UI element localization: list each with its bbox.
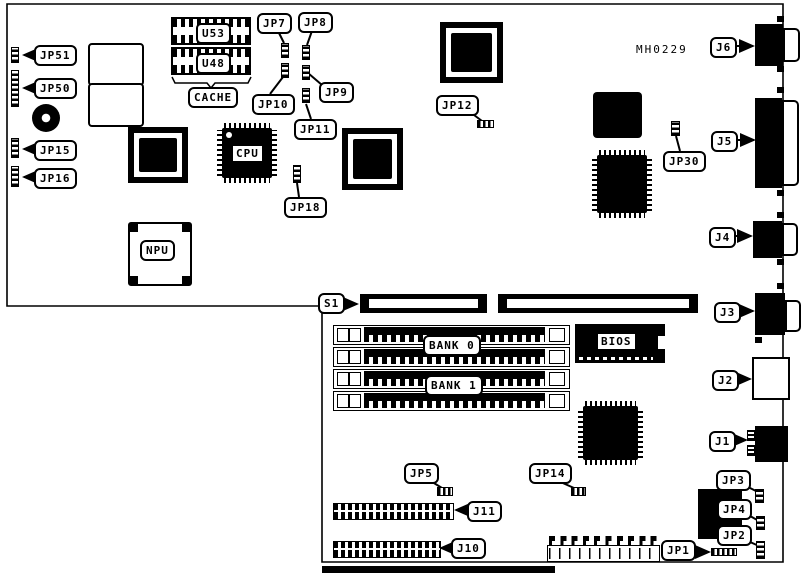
callout-s1: S1 bbox=[318, 293, 345, 314]
label-bios: BIOS bbox=[598, 334, 635, 349]
simm-clip bbox=[549, 328, 565, 342]
pin-strip bbox=[592, 157, 597, 211]
chip-qfp-upper bbox=[597, 155, 647, 213]
header-j11 bbox=[333, 503, 454, 520]
simm-clip bbox=[349, 350, 361, 364]
simm-clip bbox=[337, 350, 349, 364]
plcc-die bbox=[353, 139, 392, 179]
pin-strip bbox=[224, 123, 270, 128]
callout-j5: J5 bbox=[711, 131, 738, 152]
connector-j2 bbox=[752, 357, 790, 400]
plcc-chip-2 bbox=[440, 22, 503, 83]
jumper-jp50 bbox=[11, 70, 19, 107]
callout-jp15: JP15 bbox=[34, 140, 77, 161]
slot-opening bbox=[369, 299, 478, 308]
jumper-jp11 bbox=[302, 88, 310, 103]
slot-bar-1 bbox=[360, 294, 487, 313]
oscillator-1 bbox=[88, 43, 144, 86]
connector-j5-shell bbox=[782, 100, 799, 186]
label-bank0: BANK 0 bbox=[423, 335, 481, 356]
label-cache: CACHE bbox=[188, 87, 238, 108]
jumper-jp51 bbox=[11, 47, 19, 63]
pin-strip bbox=[647, 157, 652, 211]
pin-strip bbox=[599, 213, 645, 218]
callout-jp12: JP12 bbox=[436, 95, 479, 116]
pin-strip bbox=[224, 178, 270, 183]
callout-j6: J6 bbox=[710, 37, 737, 58]
jumper-jp16 bbox=[11, 166, 19, 187]
connector-j1-pin bbox=[747, 445, 755, 456]
connector-j6-shell bbox=[783, 28, 800, 62]
buzzer bbox=[32, 104, 60, 132]
chip-square bbox=[593, 92, 642, 138]
callout-jp11: JP11 bbox=[294, 119, 337, 140]
callout-jp18: JP18 bbox=[284, 197, 327, 218]
connector-j4-shell bbox=[782, 223, 798, 256]
socket-corner bbox=[129, 223, 138, 232]
callout-jp30: JP30 bbox=[663, 151, 706, 172]
jumper-jp3 bbox=[755, 489, 764, 503]
pin-strip bbox=[217, 130, 222, 176]
socket-corner bbox=[182, 223, 191, 232]
plcc-die bbox=[139, 138, 177, 172]
label-bank1: BANK 1 bbox=[425, 375, 483, 396]
bios-notch bbox=[658, 336, 665, 349]
callout-jp7: JP7 bbox=[257, 13, 292, 34]
label-npu: NPU bbox=[140, 240, 175, 261]
jumper-jp8 bbox=[302, 45, 310, 60]
pin1-dot bbox=[226, 132, 232, 138]
connector-j5 bbox=[755, 98, 782, 188]
chip-qfp-lower bbox=[583, 406, 638, 460]
callout-jp14: JP14 bbox=[529, 463, 572, 484]
jumper-jp12 bbox=[477, 120, 494, 128]
motherboard-diagram: U53 U48 CACHE CPU NPU MH0229 bbox=[0, 0, 804, 576]
jumper-jp15 bbox=[11, 138, 19, 158]
jumper-jp9 bbox=[302, 65, 310, 80]
jumper-jp14 bbox=[571, 487, 586, 496]
socket-corner bbox=[129, 276, 138, 285]
jumper-jp30 bbox=[671, 121, 680, 136]
callout-jp8: JP8 bbox=[298, 12, 333, 33]
bottom-edge-bar bbox=[322, 566, 555, 573]
callout-jp51: JP51 bbox=[34, 45, 77, 66]
callout-j1: J1 bbox=[709, 431, 736, 452]
callout-jp2: JP2 bbox=[717, 525, 752, 546]
callout-jp5: JP5 bbox=[404, 463, 439, 484]
simm-clip bbox=[549, 372, 565, 386]
plcc-chip-3 bbox=[342, 128, 403, 190]
simm-clip bbox=[549, 394, 565, 408]
callout-j4: J4 bbox=[709, 227, 736, 248]
callout-jp10: JP10 bbox=[252, 94, 295, 115]
jumper-jp7 bbox=[281, 43, 289, 58]
connector-j3-shell bbox=[785, 300, 801, 332]
part-number: MH0229 bbox=[633, 42, 691, 57]
callout-j10: J10 bbox=[451, 538, 486, 559]
callout-jp4: JP4 bbox=[717, 499, 752, 520]
header-j10 bbox=[333, 541, 441, 558]
jumper-jp4 bbox=[756, 516, 765, 530]
jumper-jp18 bbox=[293, 165, 301, 183]
callout-j11: J11 bbox=[467, 501, 502, 522]
callout-jp9: JP9 bbox=[319, 82, 354, 103]
pin-strip bbox=[599, 150, 645, 155]
pin-strip bbox=[272, 130, 277, 176]
callout-j2: J2 bbox=[712, 370, 739, 391]
plcc-die bbox=[451, 33, 492, 72]
socket-corner bbox=[182, 276, 191, 285]
jumper-jp5 bbox=[437, 487, 453, 496]
simm-clip bbox=[337, 372, 349, 386]
callout-j3: J3 bbox=[714, 302, 741, 323]
bios-pins bbox=[579, 357, 653, 360]
connector-pins bbox=[547, 545, 660, 562]
connector-j1 bbox=[755, 426, 788, 462]
slot-bar-2 bbox=[498, 294, 698, 313]
jumper-jp1 bbox=[711, 548, 737, 556]
pin-strip bbox=[638, 408, 643, 458]
simm-clip bbox=[349, 394, 361, 408]
simm-clip bbox=[349, 328, 361, 342]
simm-clip bbox=[549, 350, 565, 364]
pin-strip bbox=[578, 408, 583, 458]
connector-j3 bbox=[755, 293, 785, 335]
callout-jp50: JP50 bbox=[34, 78, 77, 99]
label-cpu: CPU bbox=[233, 146, 262, 161]
jumper-jp10 bbox=[281, 63, 289, 78]
callout-jp1: JP1 bbox=[661, 540, 696, 561]
oscillator-2 bbox=[88, 83, 144, 127]
simm-clip bbox=[337, 328, 349, 342]
connector-j6 bbox=[755, 24, 783, 66]
connector-j1-pin bbox=[747, 430, 755, 441]
power-connector bbox=[547, 536, 660, 562]
connector-j4 bbox=[753, 221, 782, 258]
slot-opening bbox=[507, 299, 689, 308]
jumper-jp2 bbox=[756, 541, 765, 559]
simm-clip bbox=[349, 372, 361, 386]
pin-strip bbox=[585, 460, 636, 465]
simm-clip bbox=[337, 394, 349, 408]
pin-strip bbox=[585, 401, 636, 406]
plcc-chip-1 bbox=[128, 127, 188, 183]
label-u48: U48 bbox=[196, 53, 231, 74]
callout-jp3: JP3 bbox=[716, 470, 751, 491]
label-u53: U53 bbox=[196, 23, 231, 44]
callout-jp16: JP16 bbox=[34, 168, 77, 189]
